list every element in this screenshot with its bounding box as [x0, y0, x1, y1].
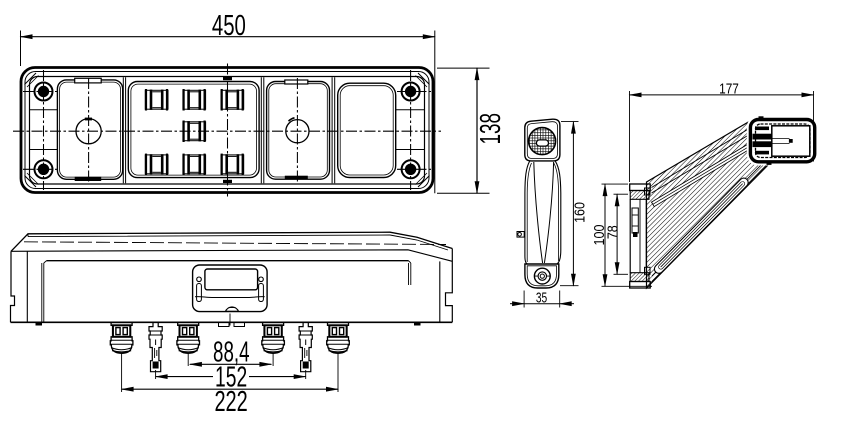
svg-text:138: 138: [475, 113, 507, 145]
svg-text:78: 78: [605, 225, 621, 239]
svg-text:450: 450: [212, 10, 246, 42]
svg-text:177: 177: [719, 82, 739, 98]
svg-text:222: 222: [214, 386, 247, 418]
svg-text:160: 160: [573, 202, 589, 223]
svg-text:35: 35: [536, 290, 547, 306]
